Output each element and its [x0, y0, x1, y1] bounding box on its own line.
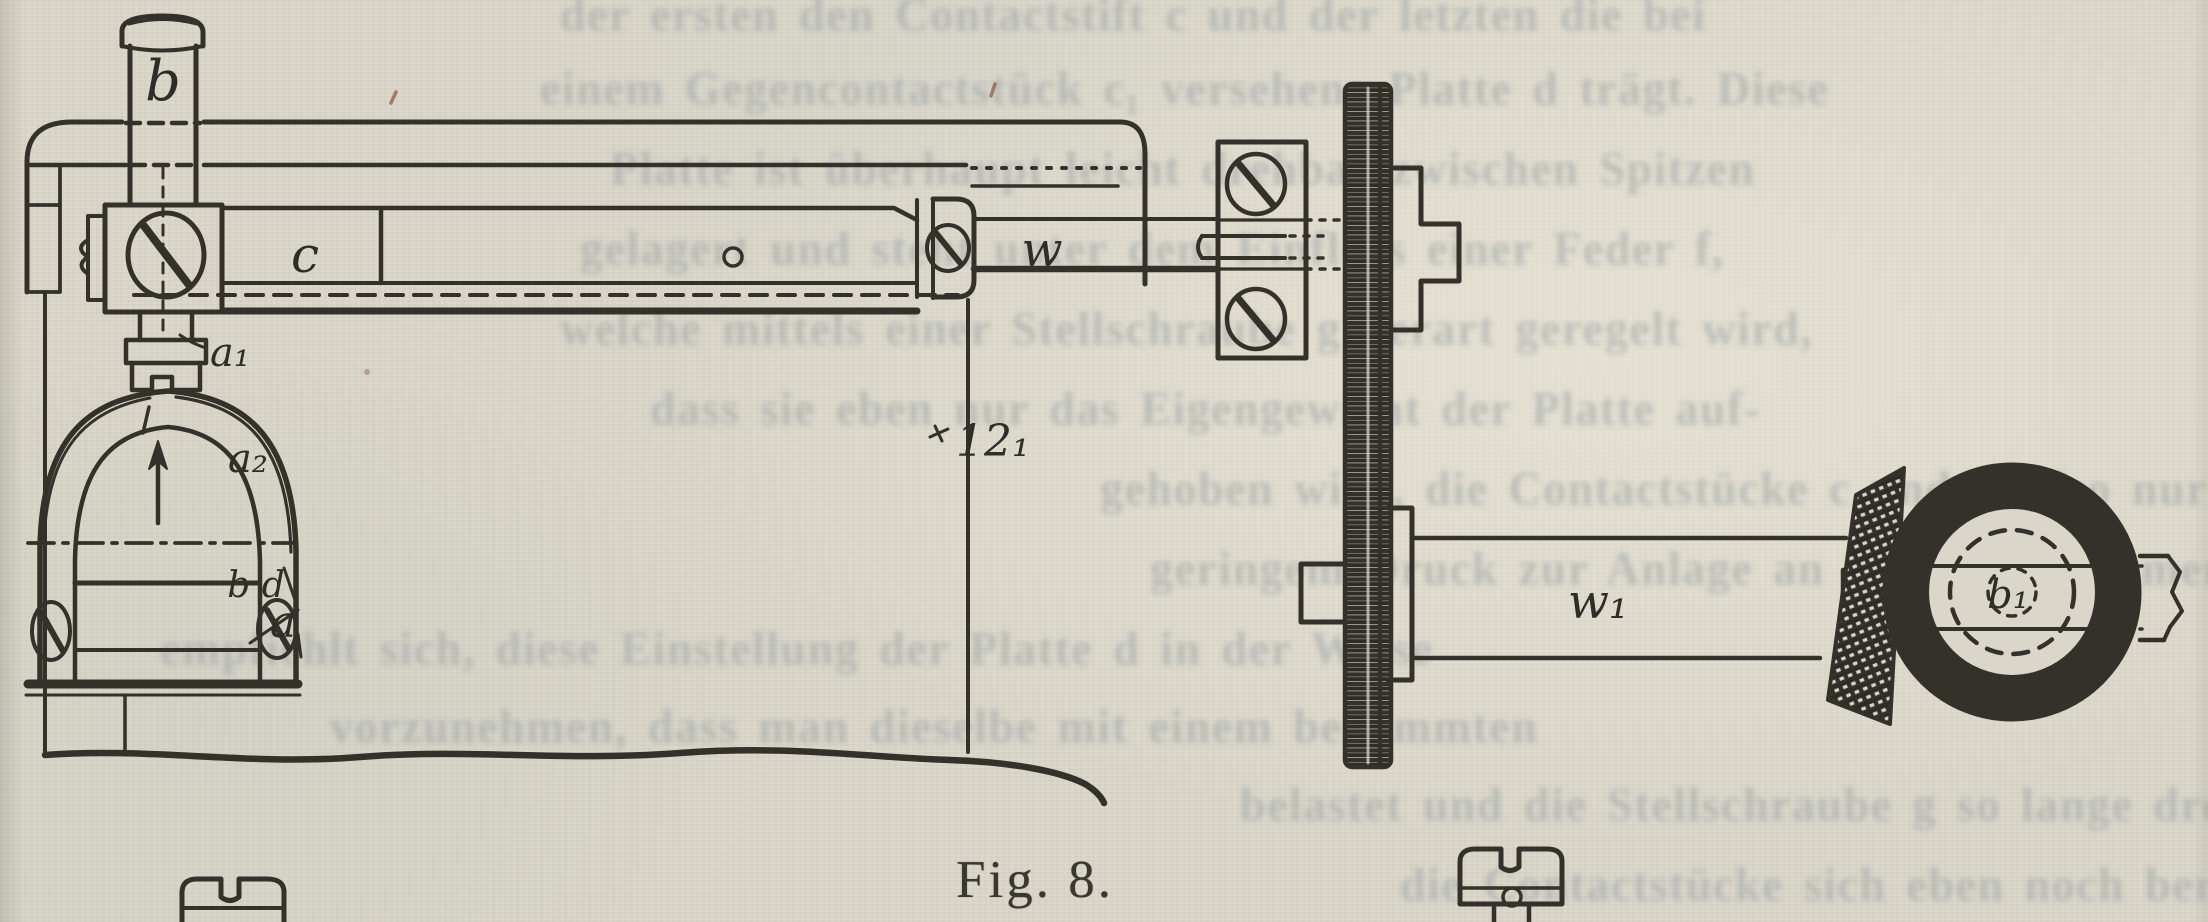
scanned-book-page: der ersten den Contactstift c und der le… [0, 0, 2208, 922]
gear-shaft-w1 [1412, 538, 1846, 658]
bar-hole-icon [724, 248, 742, 266]
figure-8-engraving: b c a₁ a₂ b d a 12₁ w w₁ b₁ [0, 0, 2208, 922]
label-a2: a₂ [228, 436, 268, 482]
bottom-screw-center [1460, 849, 1562, 922]
label-b1: b₁ [1987, 572, 2029, 618]
label-c: c [291, 226, 319, 284]
label-a1: a₁ [210, 330, 250, 376]
torn-edge [45, 750, 1104, 803]
bottom-screw-left [182, 879, 284, 922]
clamp-block [81, 205, 222, 390]
bar-end-cap [917, 199, 974, 298]
part-labels: b c a₁ a₂ b d a 12₁ w w₁ b₁ [145, 49, 2029, 648]
slide-bar-c [134, 208, 958, 311]
gear-axle-bracket [1392, 168, 1459, 330]
label-b: b [145, 49, 181, 114]
label-a: a [270, 597, 296, 648]
figure-caption: Fig. 8. [870, 850, 1200, 910]
shaft-broken-end [2140, 556, 2168, 640]
label-ticks [930, 426, 948, 441]
paper-flecks [364, 84, 995, 375]
label-12: 12₁ [956, 416, 1030, 467]
label-w1: w₁ [1568, 574, 1628, 630]
gear-axle-stub [1301, 564, 1344, 622]
gear-wheel [1301, 84, 1459, 767]
bearing-block [1218, 142, 1306, 358]
label-w: w [1021, 222, 1062, 278]
